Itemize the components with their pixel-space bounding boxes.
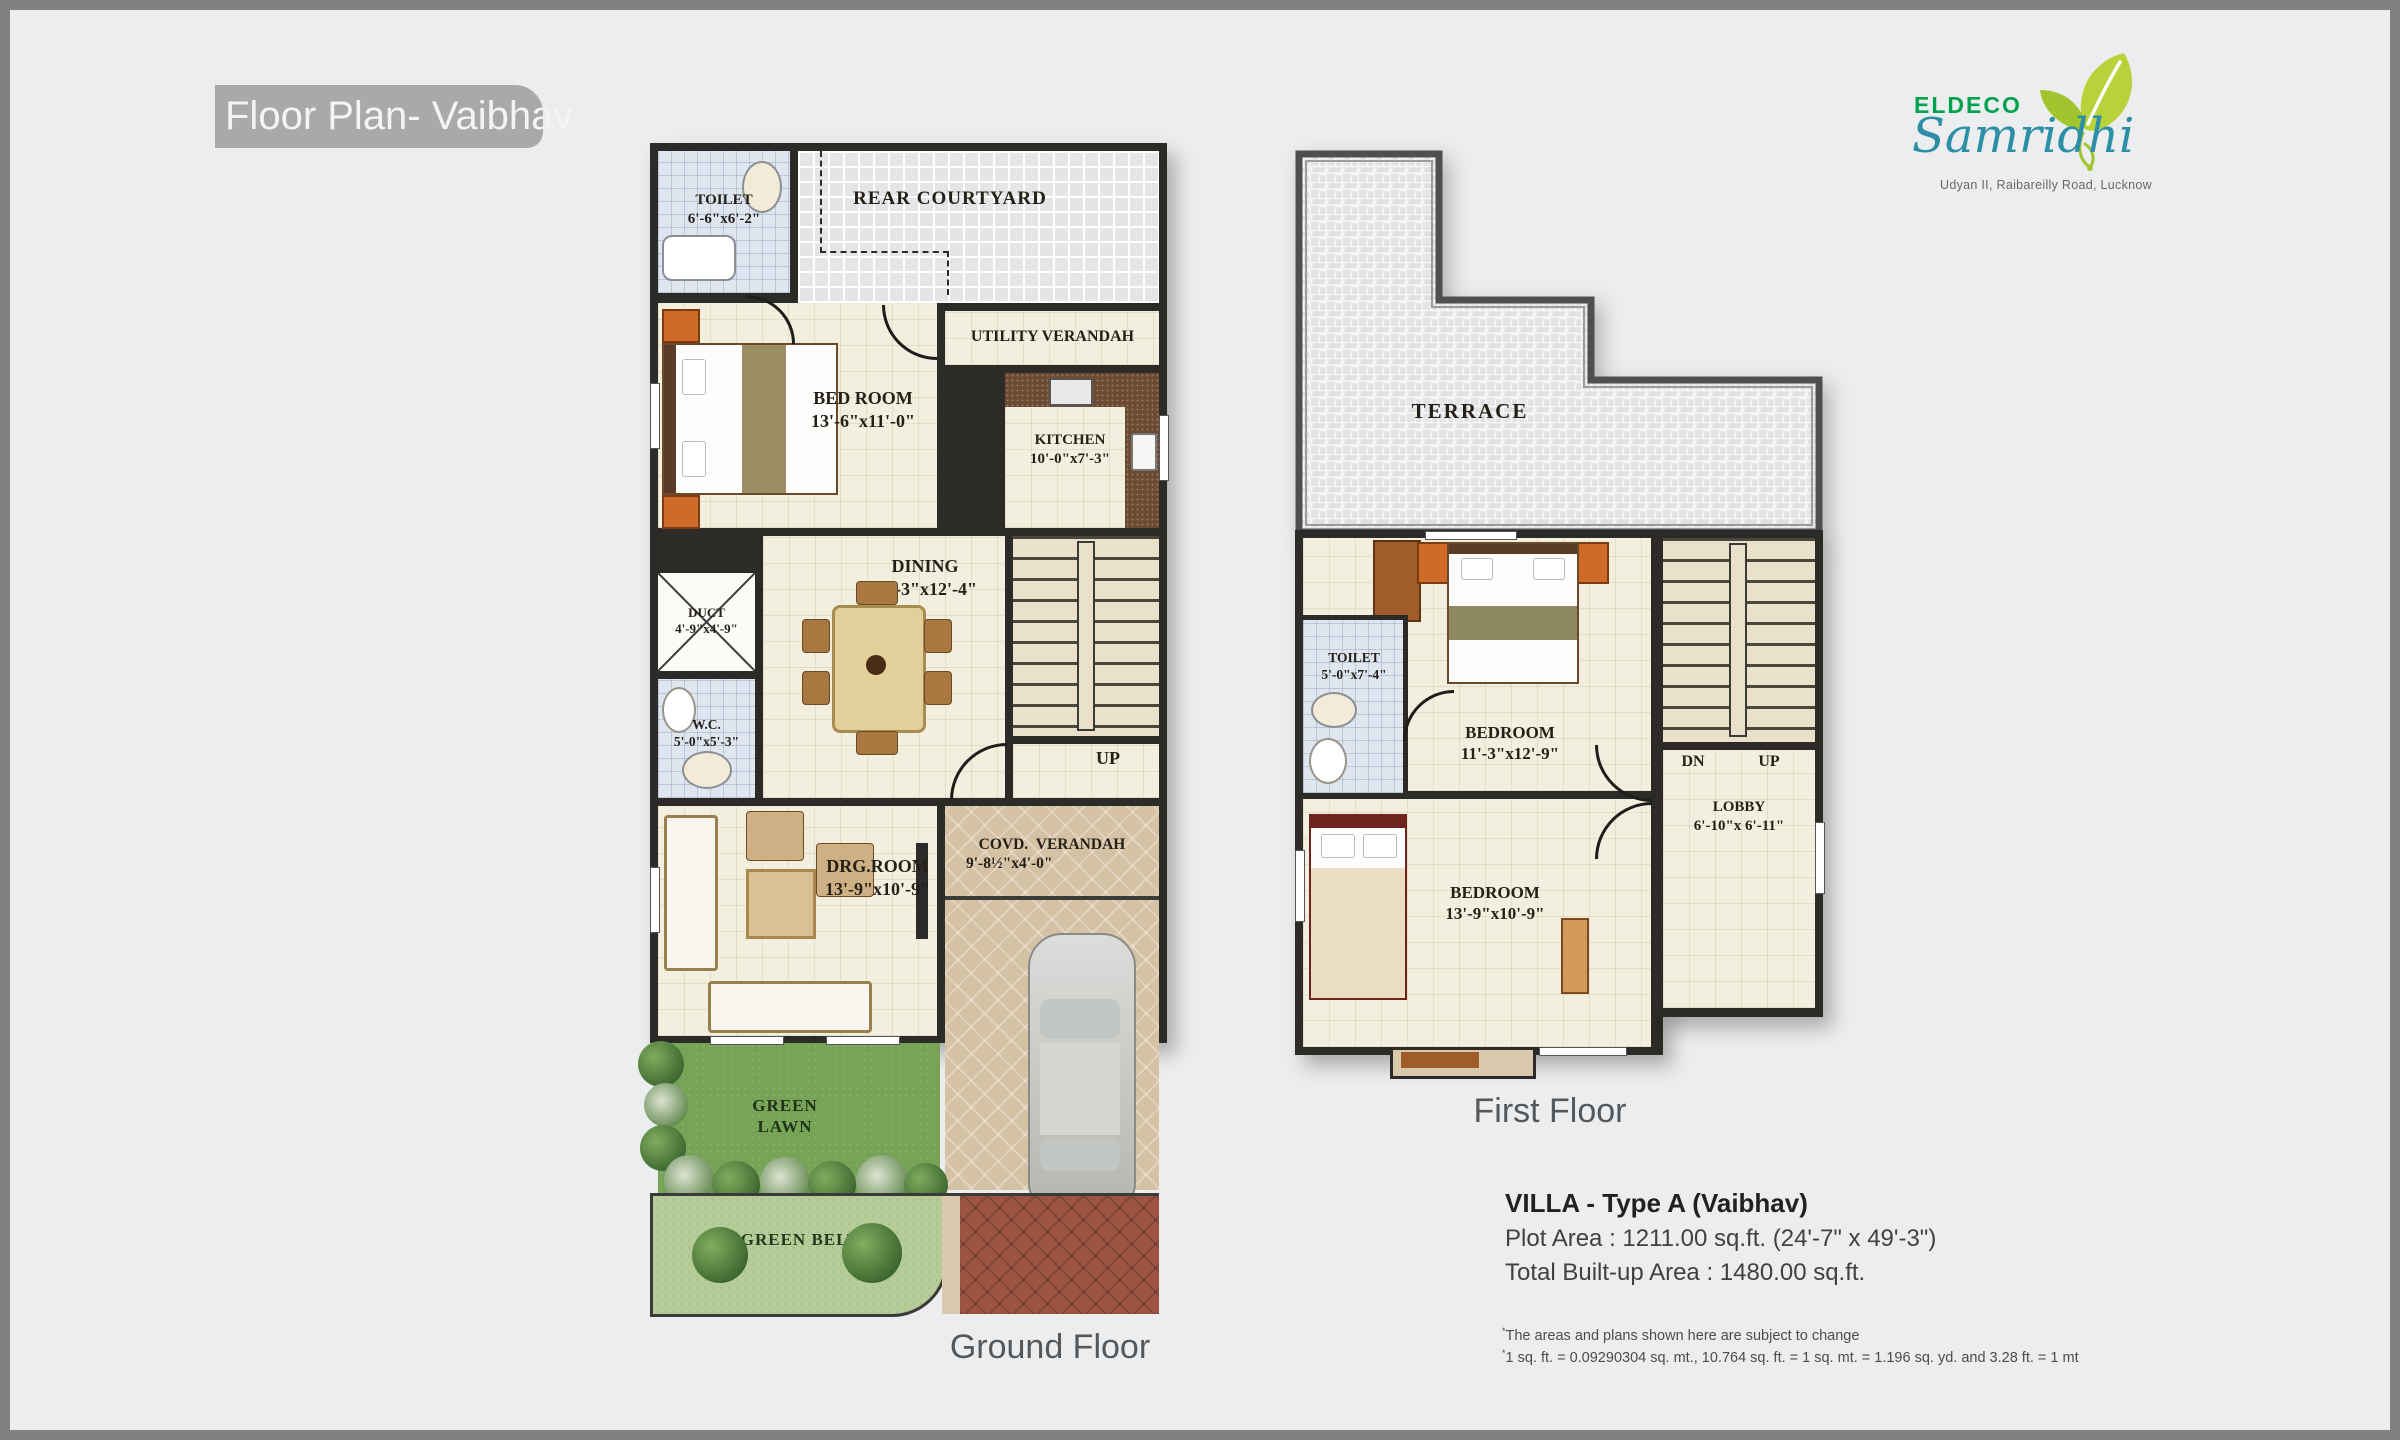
window: [1159, 415, 1169, 481]
balcony-plank: [1401, 1052, 1479, 1068]
first-floor-plan: TERRACE BEDROOM 11'-3"x12'-9" TOILET 5'-…: [1295, 150, 1823, 1080]
logo-address-text: Udyan II, Raibareilly Road, Lucknow: [1940, 178, 2152, 192]
bush: [842, 1223, 902, 1283]
gf-rear-courtyard-label: REAR COURTYARD: [820, 187, 1080, 211]
ff-lobby-label: LOBBY 6'-10"x 6'-11": [1669, 798, 1809, 836]
ff-balcony: [1390, 1047, 1536, 1079]
kitchen-sink-icon: [1049, 378, 1093, 406]
gf-green-lawn-label: GREEN LAWN: [710, 1095, 860, 1138]
gf-stairs: [1013, 536, 1159, 736]
bathtub-icon: [662, 235, 736, 281]
bush: [638, 1041, 684, 1087]
gf-curb: [942, 1193, 960, 1314]
gf-toilet-label: TOILET 6'-6"x6'-2": [668, 191, 780, 229]
gf-wc-label: W.C. 5'-0"x5'-3": [660, 717, 753, 751]
sofa-bottom: [708, 981, 872, 1033]
gf-duct-label: DUCT 4'-9"x4'-9": [660, 605, 753, 638]
note-line-2: *1 sq. ft. = 0.09290304 sq. mt., 10.764 …: [1502, 1348, 2302, 1366]
bush: [644, 1083, 688, 1127]
gf-kitchen-label: KITCHEN 10'-0"x7'-3": [1010, 431, 1130, 469]
window: [1539, 1047, 1627, 1056]
gf-drg-room-label: DRG.ROOM 13'-9"x10'-9": [790, 855, 965, 900]
ff-toilet-label: TOILET 5'-0"x7'-4": [1307, 650, 1401, 684]
ff-terrace-label: TERRACE: [1385, 398, 1555, 424]
study-desk: [1561, 918, 1589, 994]
ff-bed2: [1309, 814, 1407, 1000]
plot-area-line: Plot Area : 1211.00 sq.ft. (24'-7" x 49'…: [1505, 1225, 2265, 1253]
toilet-icon: [1311, 692, 1357, 728]
dining-chair: [802, 671, 830, 705]
gf-dining-label: DINING 11'-3"x12'-4": [825, 555, 1025, 600]
dining-table-bowl: [866, 655, 886, 675]
logo-project-text: Samridhi: [1912, 108, 2134, 164]
ff-bed1: [1447, 542, 1579, 684]
floor-plan-page: Floor Plan- Vaibhav ELDECO Samridhi Udya…: [0, 0, 2400, 1440]
courtyard-dashed-boundary-2: [947, 251, 951, 295]
washbasin-icon: [1309, 738, 1347, 784]
dining-chair: [924, 671, 952, 705]
bush: [692, 1227, 748, 1283]
car: [1028, 933, 1136, 1213]
note-line-1: *The areas and plans shown here are subj…: [1502, 1326, 2302, 1344]
window: [650, 867, 660, 933]
window: [650, 383, 660, 449]
page-title: Floor Plan- Vaibhav: [215, 85, 543, 148]
window: [1295, 850, 1305, 922]
gf-bed-room-label: BED ROOM 13'-6"x11'-0": [778, 387, 948, 432]
stair-rail: [1729, 543, 1747, 737]
brand-logo: ELDECO Samridhi Udyan II, Raibareilly Ro…: [1906, 50, 2176, 210]
ff-toilet: [1303, 620, 1403, 793]
window: [710, 1036, 784, 1045]
ff-up-label: UP: [1747, 752, 1791, 772]
ff-lobby: [1663, 750, 1815, 1008]
window: [1815, 822, 1825, 894]
ground-floor-plan: TOILET 6'-6"x6'-2" REAR COURTYARD BED RO…: [650, 143, 1167, 1320]
ff-terrace: [1295, 150, 1823, 535]
verandah-divider-wall: [945, 896, 1159, 900]
ff-dn-label: DN: [1671, 752, 1715, 772]
toilet-icon: [682, 751, 732, 789]
stove-icon: [1131, 433, 1157, 471]
gf-nightstand-bottom: [662, 495, 700, 529]
stair-rail: [1077, 541, 1095, 731]
villa-title: VILLA - Type A (Vaibhav): [1505, 1188, 2265, 1219]
dining-chair: [856, 731, 898, 755]
wardrobe: [1373, 540, 1421, 622]
dining-chair: [856, 581, 898, 605]
gf-utility-verandah-label: UTILITY VERANDAH: [950, 327, 1155, 347]
window: [1425, 531, 1517, 540]
dining-chair: [802, 619, 830, 653]
gf-rear-courtyard: [798, 151, 1159, 303]
ground-floor-caption: Ground Floor: [910, 1328, 1190, 1367]
window: [826, 1036, 900, 1045]
ff-stairs: [1663, 538, 1815, 742]
ff-bedroom2-label: BEDROOM 13'-9"x10'-9": [1395, 882, 1595, 925]
dining-chair: [924, 619, 952, 653]
villa-details: VILLA - Type A (Vaibhav) Plot Area : 121…: [1505, 1188, 2265, 1287]
sofa-left: [664, 815, 718, 971]
ff-nightstand: [1417, 542, 1449, 584]
gf-up-label: UP: [1078, 747, 1138, 770]
armchair: [746, 811, 804, 861]
first-floor-caption: First Floor: [1410, 1092, 1690, 1131]
gf-covd-verandah-label: COVD. VERANDAH 9'-8½"x4'-0": [952, 835, 1152, 874]
built-up-area-line: Total Built-up Area : 1480.00 sq.ft.: [1505, 1259, 2265, 1287]
ff-nightstand: [1577, 542, 1609, 584]
gf-nightstand-top: [662, 309, 700, 343]
disclaimer-notes: *The areas and plans shown here are subj…: [1502, 1322, 2302, 1366]
gf-driveway: [960, 1193, 1159, 1314]
